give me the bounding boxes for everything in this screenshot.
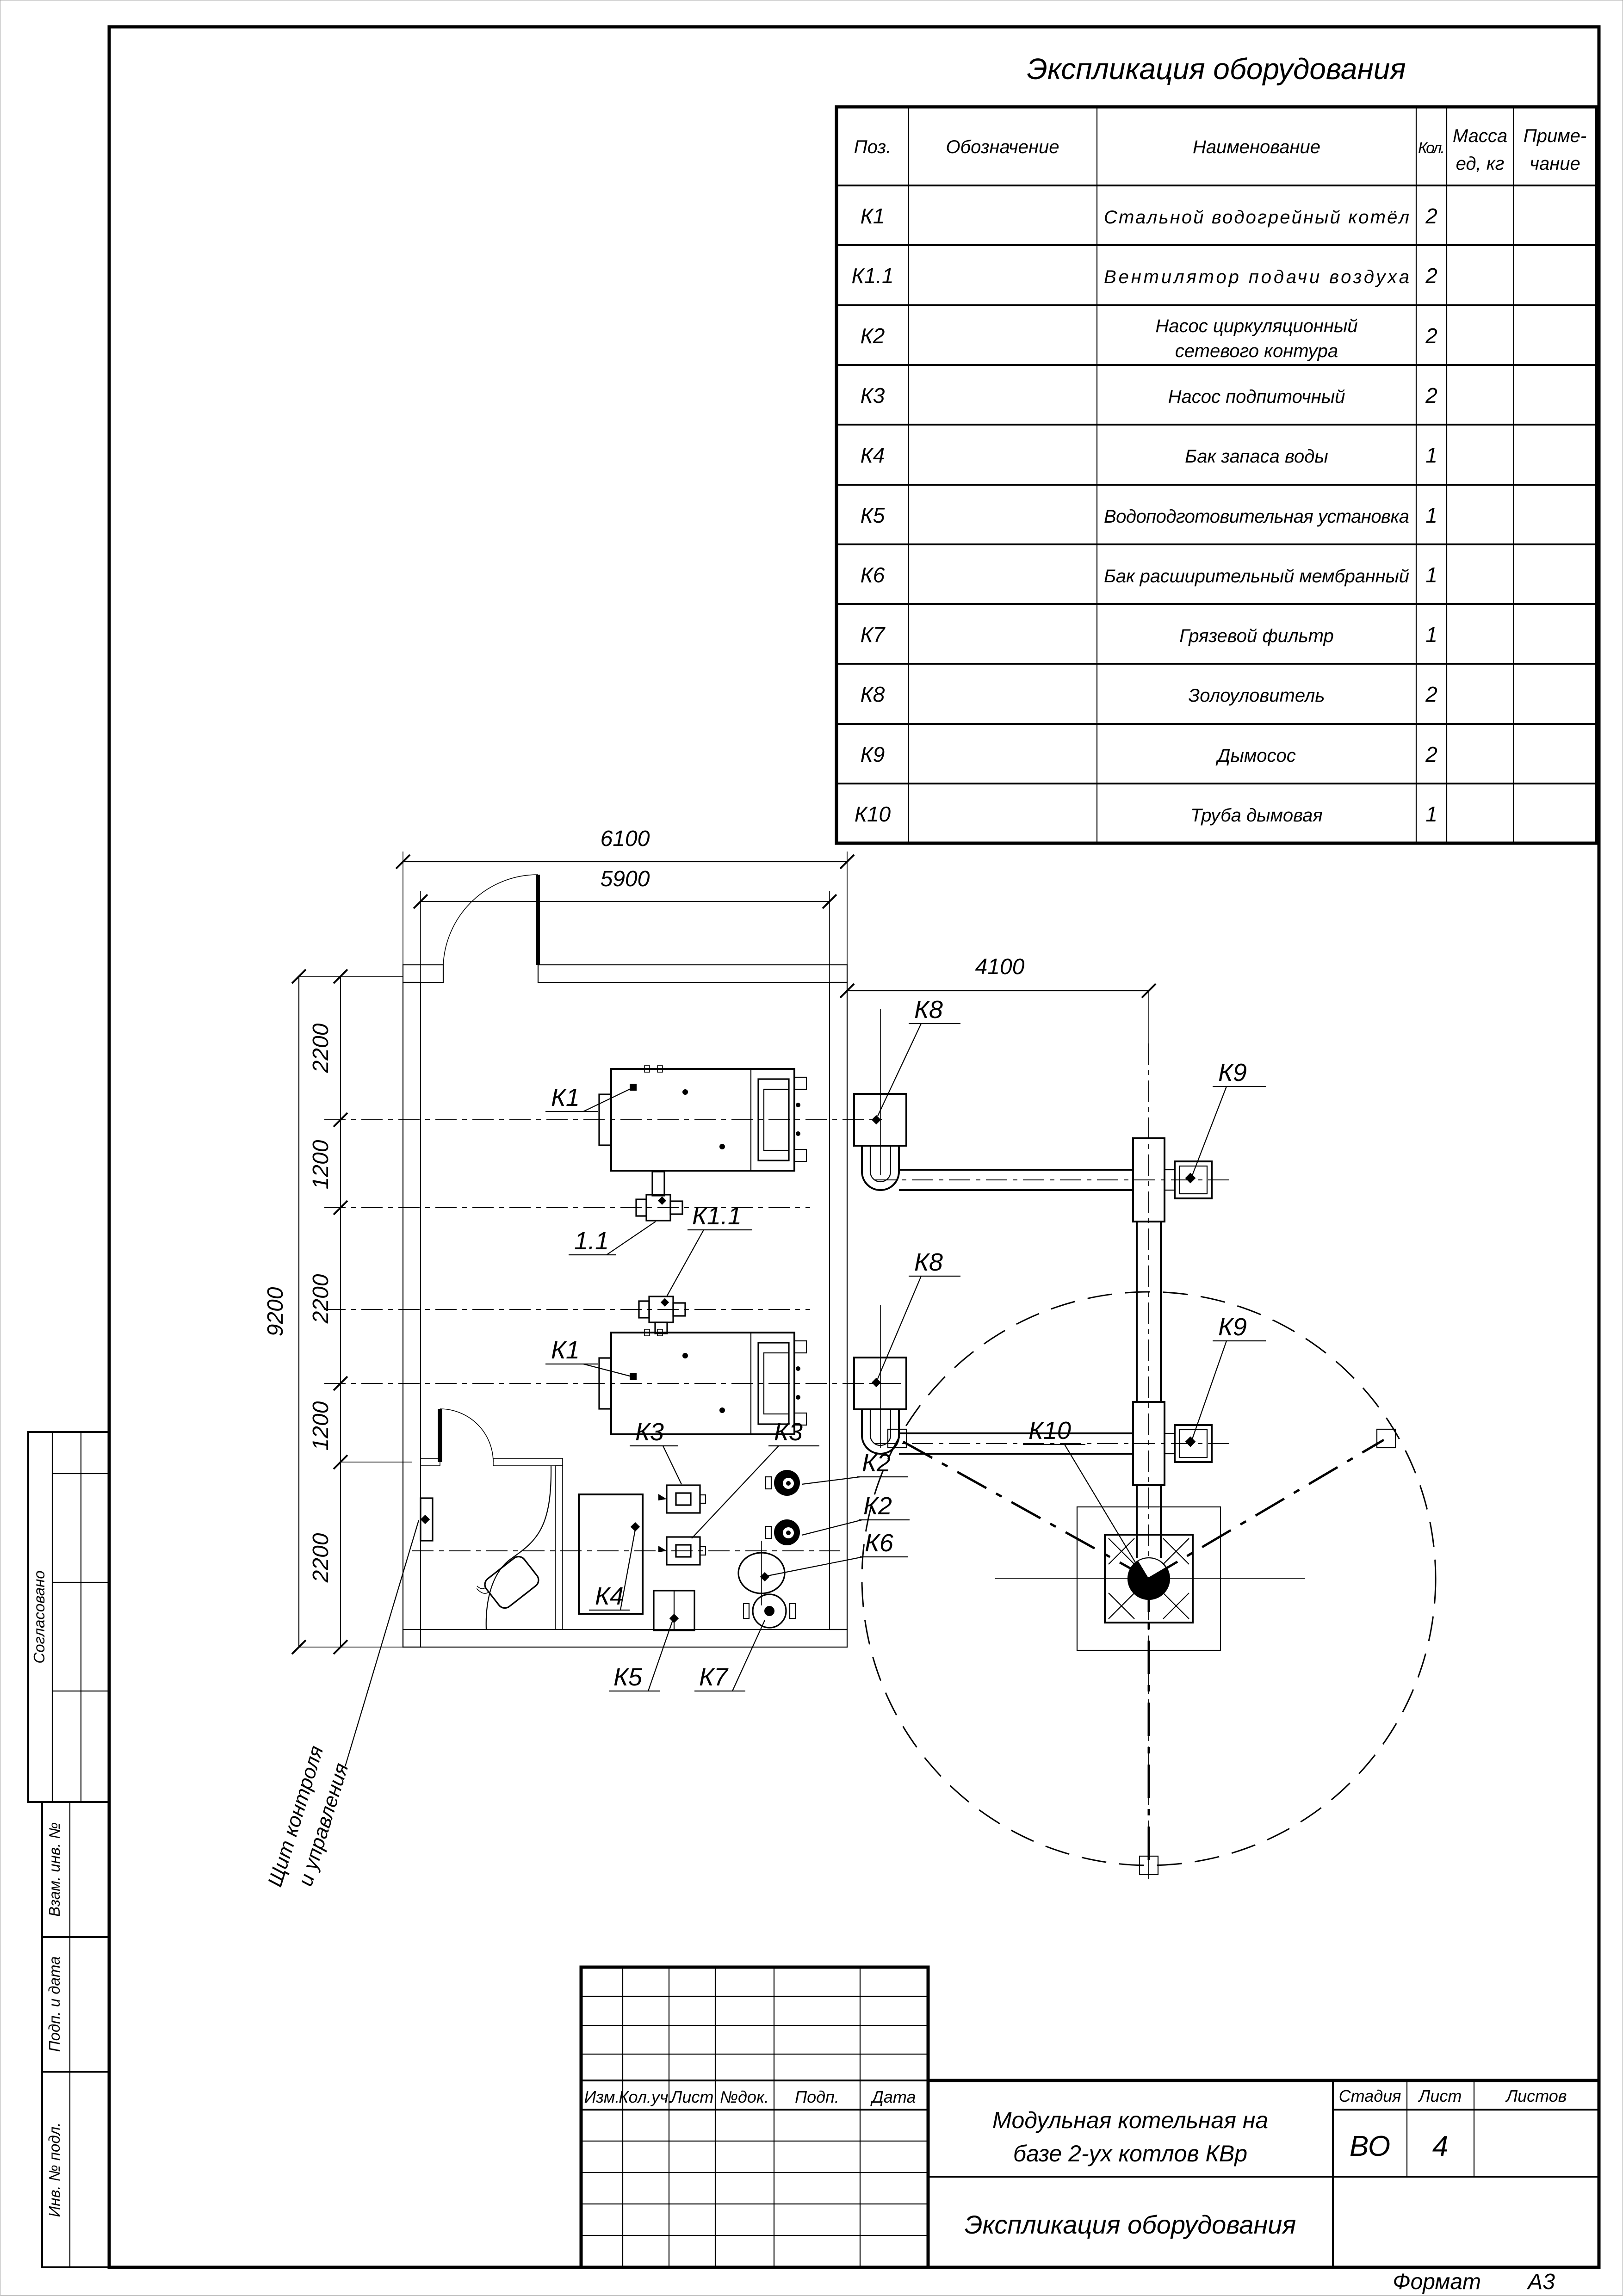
format-value: А3 xyxy=(1526,2270,1555,2294)
table-header: Поз. Обозначение Наименование Кол. Масса… xyxy=(854,126,1586,174)
title-block: Изм. Кол.уч. Лист №док. Подп. Дата Модул… xyxy=(581,1967,1599,2294)
svg-text:сетевого контура: сетевого контура xyxy=(1175,341,1338,361)
table-row: К7 Грязевой фильтр 1 xyxy=(861,623,1437,647)
label-K9-top: К9 xyxy=(1218,1059,1247,1086)
label-K8-top: К8 xyxy=(914,996,943,1024)
pump-K2-1 xyxy=(766,1470,800,1496)
table-row: К2 Насос циркуляционный сетевого контура… xyxy=(861,316,1437,361)
sink xyxy=(476,1553,542,1615)
svg-text:2: 2 xyxy=(1425,264,1437,288)
svg-text:2: 2 xyxy=(1425,204,1437,228)
label-K5: К5 xyxy=(613,1663,643,1691)
svg-text:№док.: №док. xyxy=(720,2087,769,2106)
filter-K7 xyxy=(743,1594,795,1628)
table-row: К1.1 Вентилятор подачи воздуха 2 xyxy=(851,264,1437,288)
dim-4100: 4100 xyxy=(975,955,1025,979)
dim-seg: 1200 xyxy=(309,1140,333,1189)
label-K1-top: К1 xyxy=(551,1084,580,1111)
svg-text:Кол.: Кол. xyxy=(1418,139,1445,157)
label-K9-bottom: К9 xyxy=(1218,1313,1247,1341)
svg-text:Изм.: Изм. xyxy=(584,2087,620,2106)
dim-seg: 2200 xyxy=(309,1533,333,1583)
svg-text:Водоподготовительная установка: Водоподготовительная установка xyxy=(1104,506,1409,527)
fan-duct xyxy=(652,1172,664,1196)
svg-text:К10: К10 xyxy=(855,802,891,826)
svg-text:чание: чание xyxy=(1530,154,1580,174)
drain-line xyxy=(486,1466,551,1629)
svg-text:К6: К6 xyxy=(861,563,885,587)
stamp-podp: Подп. и дата xyxy=(46,1957,63,2052)
unit-K5 xyxy=(654,1591,694,1630)
label-K8-bottom: К8 xyxy=(914,1248,943,1276)
svg-text:Золоуловитель: Золоуловитель xyxy=(1189,685,1325,706)
labels: К1 1.1 К1.1 К1 К8 К8 К9 К9 xyxy=(264,996,1266,1889)
svg-text:1: 1 xyxy=(1425,443,1437,467)
dim-seg: 1200 xyxy=(309,1401,333,1450)
svg-text:Приме-: Приме- xyxy=(1524,126,1586,146)
dim-6100: 6100 xyxy=(601,827,650,851)
svg-text:ед, кг: ед, кг xyxy=(1456,154,1505,174)
svg-text:Труба дымовая: Труба дымовая xyxy=(1190,805,1323,826)
table-row: К1 Стальной водогрейный котёл 2 xyxy=(861,204,1437,228)
pump-K2-2 xyxy=(766,1519,800,1545)
label-K10: К10 xyxy=(1028,1417,1071,1444)
table-row: К10 Труба дымовая 1 xyxy=(855,802,1437,826)
svg-text:К1: К1 xyxy=(861,204,885,228)
label-K1-bottom: К1 xyxy=(551,1336,580,1364)
svg-text:Стальной водогрейный котёл: Стальной водогрейный котёл xyxy=(1104,207,1409,228)
svg-text:Наименование: Наименование xyxy=(1193,137,1320,157)
svg-text:К2: К2 xyxy=(861,324,885,348)
table-row: К3 Насос подпиточный 2 xyxy=(861,383,1437,407)
format-label: Формат xyxy=(1393,2270,1481,2294)
svg-text:Насос циркуляционный: Насос циркуляционный xyxy=(1155,316,1357,336)
svg-text:Дата: Дата xyxy=(870,2087,916,2106)
label-K11-top: 1.1 xyxy=(574,1227,609,1255)
svg-text:1: 1 xyxy=(1425,563,1437,587)
svg-text:Кол.уч.: Кол.уч. xyxy=(619,2087,673,2106)
building-walls xyxy=(403,965,847,1647)
svg-text:Масса: Масса xyxy=(1453,126,1507,146)
project-title: базе 2-ух котлов КВр xyxy=(1013,2141,1247,2166)
annotation-control-panel: Щит контроля и управления xyxy=(264,1520,419,1889)
table-row: К6 Бак расширительный мембранный 1 xyxy=(861,563,1437,587)
svg-text:2: 2 xyxy=(1425,383,1437,407)
stage-value: ВО xyxy=(1350,2130,1390,2162)
floor-plan: 6100 5900 4100 9200 2200 1200 2200 xyxy=(263,827,1436,1889)
label-K11-bottom: К1.1 xyxy=(692,1202,742,1230)
label-K6: К6 xyxy=(865,1529,894,1557)
title-block-columns: Изм. Кол.уч. Лист №док. Подп. Дата xyxy=(584,2087,916,2106)
svg-text:К4: К4 xyxy=(861,443,885,467)
vestibule-door xyxy=(440,1409,493,1462)
table-row: К9 Дымосос 2 xyxy=(861,742,1437,766)
flue-system xyxy=(854,1009,1231,1558)
dim-seg: 2200 xyxy=(309,1274,333,1324)
svg-text:К8: К8 xyxy=(861,682,885,706)
table-row: К8 Золоуловитель 2 xyxy=(861,682,1437,706)
svg-text:1: 1 xyxy=(1425,503,1437,527)
label-K3-1: К3 xyxy=(635,1418,664,1446)
dim-9200: 9200 xyxy=(263,1287,288,1336)
side-stamps: Согласовано Взам. инв. № Подп. и дата Ин… xyxy=(28,1432,109,2267)
label-K2-1: К2 xyxy=(862,1449,891,1477)
dimensions: 6100 5900 4100 9200 2200 1200 2200 xyxy=(263,827,1156,1654)
stamp-agreed: Согласовано xyxy=(31,1570,48,1663)
svg-text:К7: К7 xyxy=(861,623,886,647)
svg-text:К3: К3 xyxy=(861,383,885,407)
svg-text:Вентилятор подачи воздуха: Вентилятор подачи воздуха xyxy=(1104,267,1409,287)
stamp-vzam: Взам. инв. № xyxy=(46,1822,63,1917)
stage-label: Стадия xyxy=(1339,2086,1401,2105)
sheets-label: Листов xyxy=(1505,2086,1567,2105)
svg-text:Лист: Лист xyxy=(670,2087,714,2106)
svg-text:Дымосос: Дымосос xyxy=(1215,746,1296,766)
table-row: К5 Водоподготовительная установка 1 xyxy=(861,503,1437,527)
table-row: К4 Бак запаса воды 1 xyxy=(861,443,1437,467)
svg-text:Грязевой фильтр: Грязевой фильтр xyxy=(1179,626,1334,646)
stamp-inv: Инв. № подл. xyxy=(46,2123,63,2217)
label-K2-2: К2 xyxy=(863,1492,892,1520)
label-K4: К4 xyxy=(595,1582,624,1610)
svg-text:2: 2 xyxy=(1425,742,1437,766)
svg-text:К1.1: К1.1 xyxy=(851,264,893,288)
doc-title: Экспликация оборудования xyxy=(965,2210,1296,2239)
chimney-K10 xyxy=(862,991,1436,1879)
equipment-table: Экспликация оборудования Поз. Обозначени… xyxy=(836,52,1597,843)
label-K3-2: К3 xyxy=(774,1418,803,1446)
label-K7: К7 xyxy=(699,1663,729,1691)
sheet-label: Лист xyxy=(1418,2086,1462,2105)
table-title: Экспликация оборудования xyxy=(1027,52,1406,86)
svg-text:Поз.: Поз. xyxy=(854,137,892,157)
svg-text:2: 2 xyxy=(1425,324,1437,348)
dim-5900: 5900 xyxy=(601,867,650,891)
svg-text:Подп.: Подп. xyxy=(795,2087,839,2106)
dim-seg: 2200 xyxy=(309,1023,333,1073)
boiler-K1-top xyxy=(599,1066,806,1171)
drawing-sheet: Экспликация оборудования Поз. Обозначени… xyxy=(0,0,1623,2296)
entrance-door xyxy=(443,875,538,965)
sheet-value: 4 xyxy=(1432,2130,1448,2162)
svg-text:Бак запаса воды: Бак запаса воды xyxy=(1185,446,1328,467)
svg-text:Насос подпиточный: Насос подпиточный xyxy=(1168,387,1345,407)
svg-text:1: 1 xyxy=(1425,623,1437,647)
svg-text:2: 2 xyxy=(1425,682,1437,706)
guy-anchor xyxy=(1377,1429,1395,1448)
project-title: Модульная котельная на xyxy=(992,2107,1268,2133)
svg-text:Бак расширительный мембранный: Бак расширительный мембранный xyxy=(1104,566,1409,586)
svg-text:1: 1 xyxy=(1425,802,1437,826)
svg-text:Обозначение: Обозначение xyxy=(946,137,1059,157)
pump-K3-1 xyxy=(658,1485,706,1513)
svg-text:К9: К9 xyxy=(861,742,885,766)
svg-text:К5: К5 xyxy=(861,503,885,527)
